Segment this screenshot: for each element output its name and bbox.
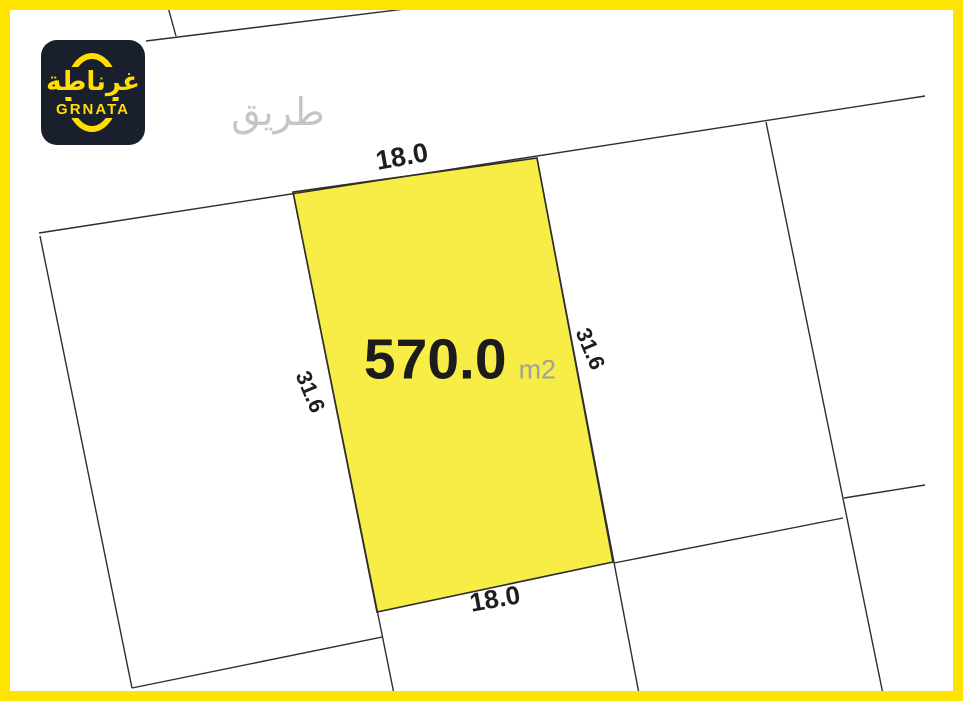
plot-map: طريق 570.0 m2 18.0 18.0 31.6 31.6 غرناطة… [0, 0, 963, 701]
north-plot-divider-line [166, 0, 176, 36]
plot-area-unit: m2 [519, 357, 557, 384]
logo-latin-text: GRNATA [41, 101, 145, 119]
logo-latin-label: GRNATA [54, 101, 132, 118]
right-plot-east-line [766, 122, 884, 699]
left-plot-south-line [132, 637, 382, 688]
left-plot-west-line [40, 236, 132, 688]
center-south-boundary-line [614, 518, 843, 563]
plot-area-value: 570.0 [364, 332, 507, 389]
road-label: طريق [231, 90, 324, 134]
plot-area-label: 570.0 m2 [364, 332, 556, 389]
right-south-boundary-line [844, 485, 925, 498]
grnata-logo: غرناطة GRNATA [41, 40, 145, 145]
road-north-line [146, 5, 437, 41]
logo-arabic-text: غرناطة [41, 65, 145, 99]
logo-arabic-label: غرناطة [43, 67, 143, 97]
